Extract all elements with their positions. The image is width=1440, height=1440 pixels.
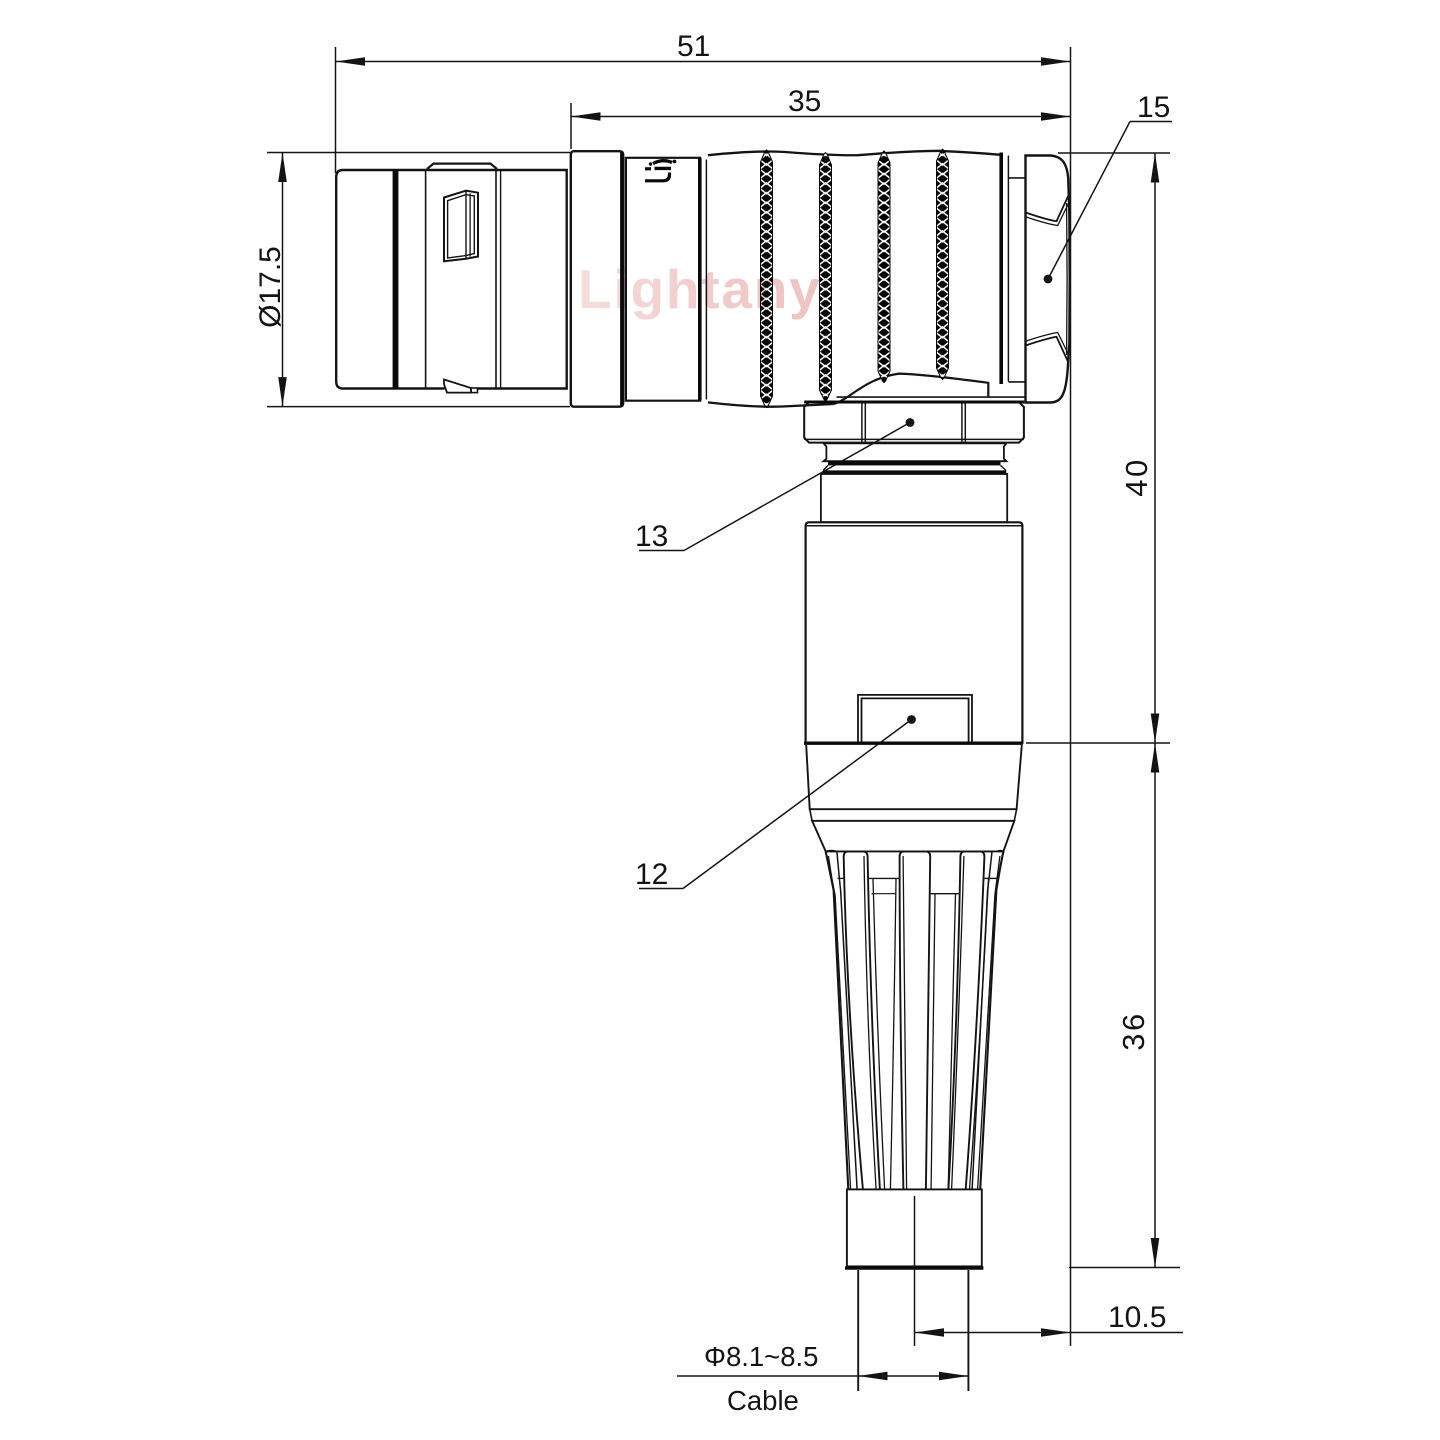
svg-text:36: 36 xyxy=(1116,1011,1151,1050)
svg-text:40: 40 xyxy=(1119,457,1154,496)
svg-text:15: 15 xyxy=(1137,91,1170,124)
svg-text:10.5: 10.5 xyxy=(1108,1301,1166,1334)
svg-text:Lightany: Lightany xyxy=(578,258,822,320)
svg-text:Ø17.5: Ø17.5 xyxy=(254,246,287,328)
svg-text:13: 13 xyxy=(635,520,668,553)
svg-text:51: 51 xyxy=(677,30,710,63)
svg-text:Cable: Cable xyxy=(727,1385,799,1416)
svg-text:12: 12 xyxy=(635,858,668,891)
svg-text:Φ8.1~8.5: Φ8.1~8.5 xyxy=(704,1341,818,1372)
svg-text:35: 35 xyxy=(788,85,821,118)
